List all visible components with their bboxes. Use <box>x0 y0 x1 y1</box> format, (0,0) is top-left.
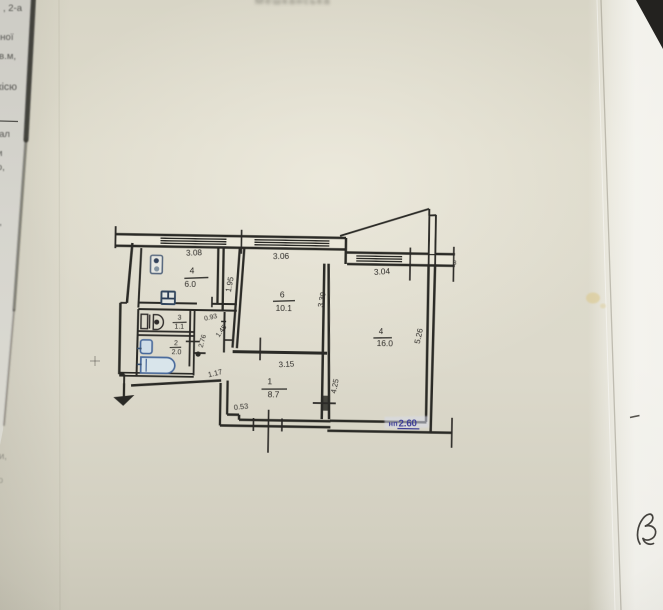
svg-text:8.7: 8.7 <box>268 389 280 399</box>
svg-text:0.93: 0.93 <box>203 313 218 323</box>
svg-text:нп: нп <box>388 419 397 428</box>
svg-text:4: 4 <box>379 327 384 336</box>
svg-text:ю,: ю, <box>0 162 5 173</box>
svg-text:3.04: 3.04 <box>374 266 391 277</box>
svg-text:, 2-а: , 2-а <box>3 3 23 14</box>
svg-text:2.0: 2.0 <box>172 349 182 356</box>
svg-text:ки: ки <box>0 148 2 159</box>
svg-text:10.1: 10.1 <box>276 303 293 313</box>
svg-text:6.0: 6.0 <box>184 280 196 289</box>
svg-text:1.45: 1.45 <box>215 324 229 339</box>
svg-text:5.26: 5.26 <box>413 327 425 345</box>
svg-text:и,: и, <box>0 217 2 228</box>
svg-text:3: 3 <box>177 315 181 322</box>
svg-text:кісю: кісю <box>0 81 17 93</box>
svg-text:2.60: 2.60 <box>398 418 417 429</box>
svg-text:3.30: 3.30 <box>316 291 328 308</box>
svg-text:ю: ю <box>0 475 3 486</box>
svg-text:1.1: 1.1 <box>174 323 184 330</box>
svg-text:кв.м,: кв.м, <box>0 51 16 62</box>
svg-text:1.95: 1.95 <box>224 275 236 293</box>
svg-text:1: 1 <box>267 376 272 386</box>
svg-text:2: 2 <box>174 340 178 347</box>
svg-text:3.08: 3.08 <box>186 248 203 258</box>
svg-text:Мешканська: Мешканська <box>255 0 331 7</box>
svg-text:4.25: 4.25 <box>329 378 341 394</box>
svg-text:16.0: 16.0 <box>377 338 394 348</box>
svg-text:2.76: 2.76 <box>198 334 208 349</box>
svg-text:3: 3 <box>453 260 457 267</box>
svg-text:іал: іал <box>0 129 10 140</box>
svg-text:4: 4 <box>190 265 195 275</box>
svg-text:0.53: 0.53 <box>233 401 248 412</box>
svg-text:иної: иної <box>0 32 14 43</box>
svg-text:и,: и, <box>0 451 7 462</box>
svg-text:3.15: 3.15 <box>278 359 295 369</box>
svg-text:3.06: 3.06 <box>273 251 290 261</box>
svg-text:1.17: 1.17 <box>207 367 223 379</box>
svg-text:6: 6 <box>280 289 285 299</box>
